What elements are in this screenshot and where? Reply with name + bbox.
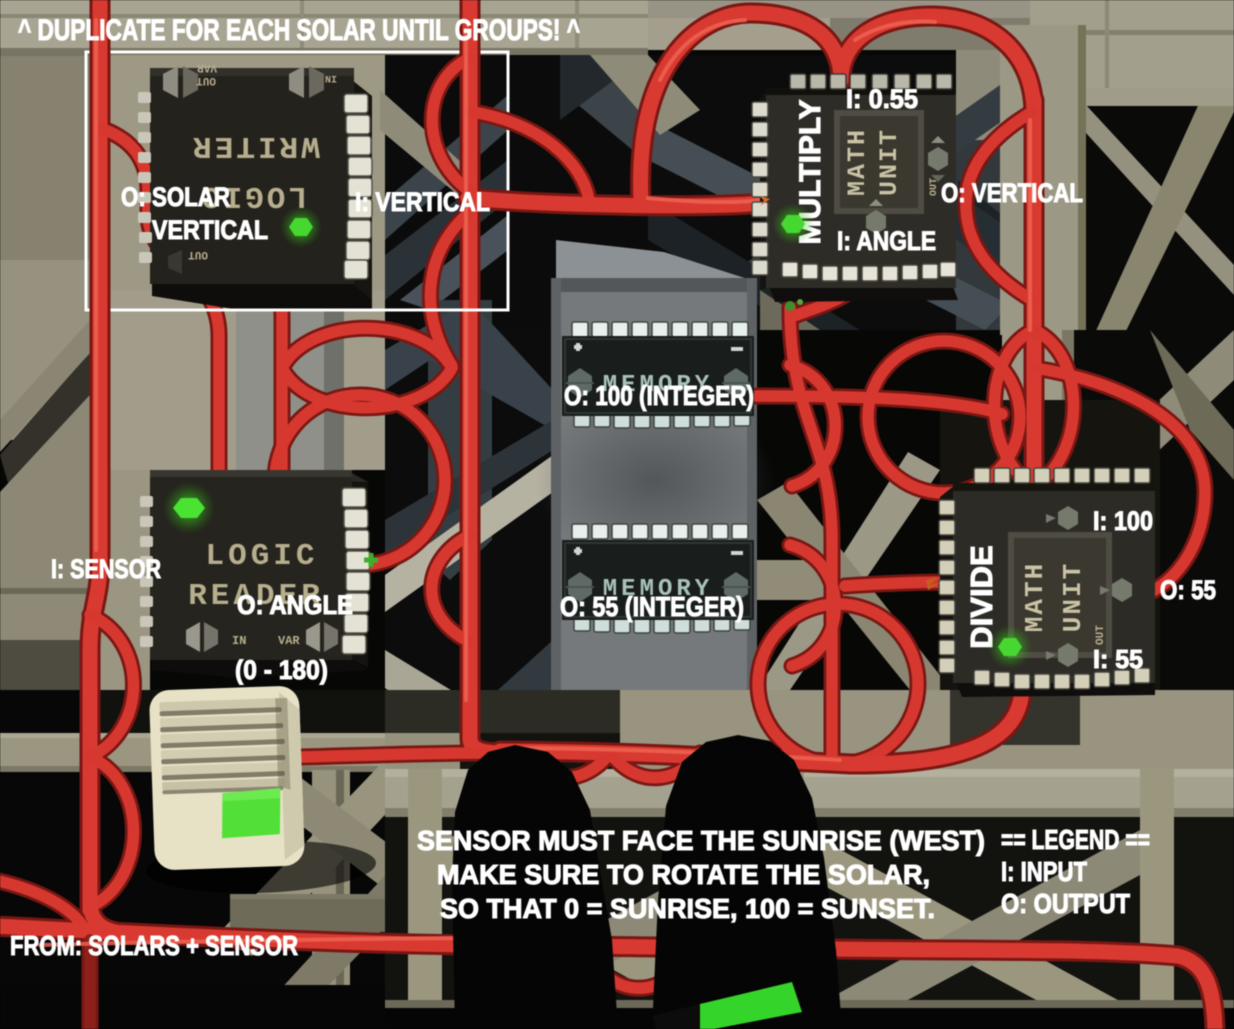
svg-text:== LEGEND ==: == LEGEND == xyxy=(1001,824,1150,855)
svg-text:O: SOLAR: O: SOLAR xyxy=(121,182,230,212)
svg-text:VAR: VAR xyxy=(278,634,300,648)
svg-text:O: ANGLE: O: ANGLE xyxy=(237,590,353,620)
svg-text:O: VERTICAL: O: VERTICAL xyxy=(941,178,1083,208)
svg-text:LOGIC: LOGIC xyxy=(205,539,318,574)
svg-text:MATH: MATH xyxy=(1020,562,1050,632)
svg-text:^ DUPLICATE FOR EACH SOLAR UNT: ^ DUPLICATE FOR EACH SOLAR UNTIL GROUPS!… xyxy=(18,14,580,47)
svg-text:I: VERTICAL: I: VERTICAL xyxy=(355,187,490,217)
svg-text:OUT: OUT xyxy=(929,178,940,196)
svg-text:I: 100: I: 100 xyxy=(1093,506,1153,536)
svg-text:VAR: VAR xyxy=(197,61,217,73)
svg-text:MAKE SURE TO ROTATE THE SOLAR,: MAKE SURE TO ROTATE THE SOLAR, xyxy=(437,859,930,890)
svg-text:UNIT: UNIT xyxy=(875,128,904,196)
svg-text:I: 55: I: 55 xyxy=(1093,644,1143,674)
svg-text:I: 0.55: I: 0.55 xyxy=(846,84,918,114)
svg-text:SO THAT 0 = SUNRISE, 100 = SUN: SO THAT 0 = SUNRISE, 100 = SUNSET. xyxy=(440,893,935,924)
svg-text:I: ANGLE: I: ANGLE xyxy=(837,226,936,256)
svg-text:I: SENSOR: I: SENSOR xyxy=(51,554,161,584)
svg-text:OUT: OUT xyxy=(188,248,208,260)
svg-text:O: 55 (INTEGER): O: 55 (INTEGER) xyxy=(560,591,744,622)
svg-text:WRITER: WRITER xyxy=(190,128,320,163)
svg-text:UNIT: UNIT xyxy=(1058,562,1088,632)
svg-text:VERTICAL: VERTICAL xyxy=(152,215,268,245)
svg-text:FROM: SOLARS + SENSOR: FROM: SOLARS + SENSOR xyxy=(10,930,298,961)
svg-text:OUT: OUT xyxy=(196,74,216,86)
svg-text:(0 - 180): (0 - 180) xyxy=(235,655,328,685)
svg-text:O: OUTPUT: O: OUTPUT xyxy=(1001,888,1130,919)
svg-text:MATH: MATH xyxy=(843,128,872,196)
svg-text:SENSOR MUST FACE THE SUNRISE (: SENSOR MUST FACE THE SUNRISE (WEST) xyxy=(417,825,985,856)
svg-text:O: 55: O: 55 xyxy=(1160,575,1216,605)
svg-text:IN: IN xyxy=(232,634,246,648)
svg-text:IN: IN xyxy=(325,72,337,83)
svg-text:I: INPUT: I: INPUT xyxy=(1001,856,1087,887)
svg-text:O: 100 (INTEGER): O: 100 (INTEGER) xyxy=(564,380,754,411)
svg-text:OUT: OUT xyxy=(1095,625,1107,645)
